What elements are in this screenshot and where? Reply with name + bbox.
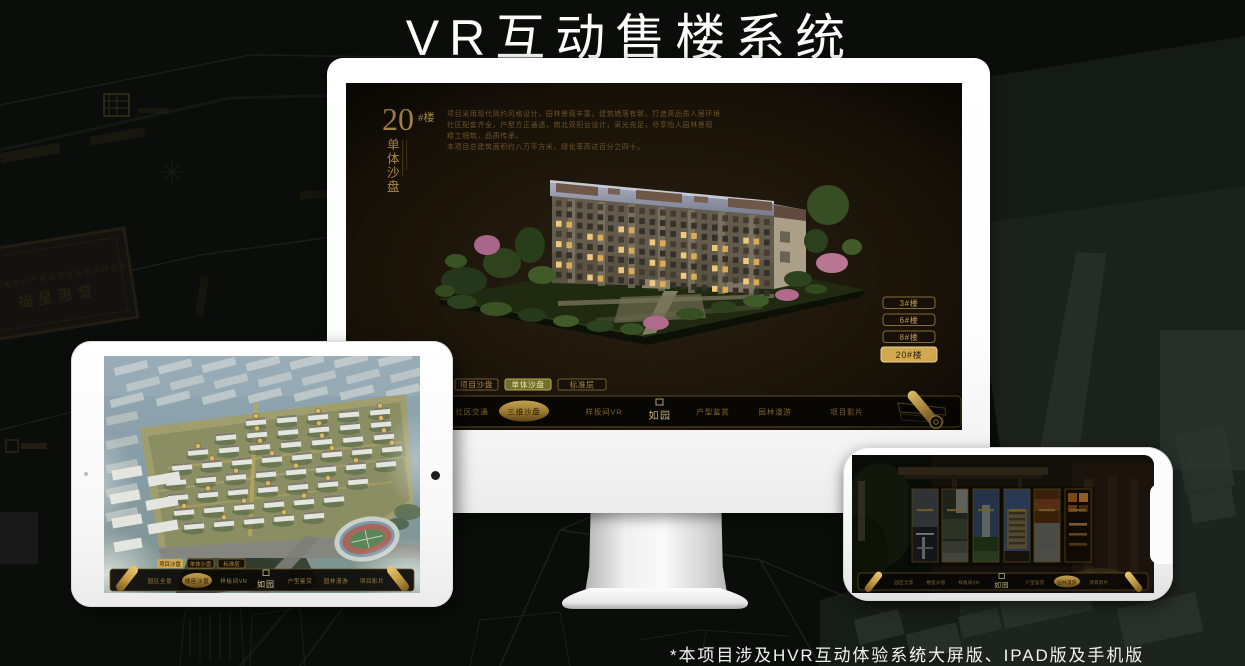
svg-text:如园: 如园	[995, 580, 1010, 589]
svg-text:户型鉴赏: 户型鉴赏	[288, 577, 312, 585]
svg-text:标准层: 标准层	[223, 560, 240, 568]
svg-text:样板间VR: 样板间VR	[958, 579, 979, 586]
svg-text:园林漫游: 园林漫游	[1057, 579, 1076, 586]
svg-text:项目影片: 项目影片	[1089, 579, 1108, 586]
svg-text:园区全景: 园区全景	[148, 577, 172, 585]
svg-text:楼座沙盘: 楼座沙盘	[185, 577, 209, 585]
svg-text:项目沙盘: 项目沙盘	[159, 560, 181, 568]
svg-text:单体沙盘: 单体沙盘	[190, 560, 212, 568]
svg-text:样板间VR: 样板间VR	[220, 577, 247, 585]
svg-text:户型鉴赏: 户型鉴赏	[1025, 579, 1044, 586]
svg-text:如园: 如园	[257, 579, 275, 589]
svg-text:楼座沙盘: 楼座沙盘	[926, 579, 945, 586]
svg-text:园林漫游: 园林漫游	[324, 577, 348, 585]
svg-text:园区全景: 园区全景	[894, 579, 913, 586]
svg-text:项目影片: 项目影片	[360, 577, 384, 585]
